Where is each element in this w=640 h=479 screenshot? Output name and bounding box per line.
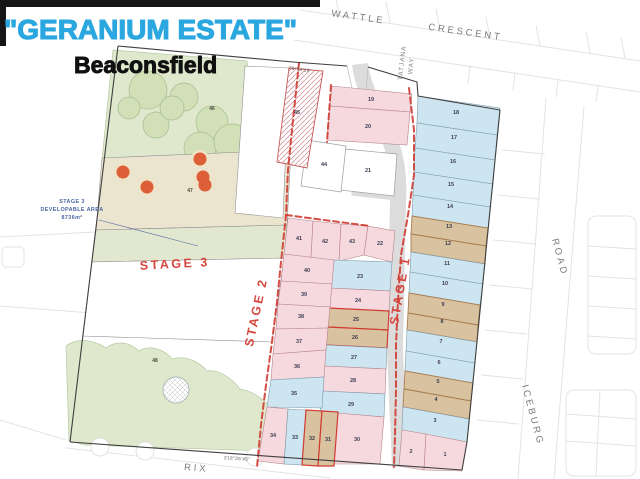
lot-6-label: 6 [437,360,440,366]
street-rix: RIX [184,462,209,475]
top-border-bar [0,0,320,7]
lot-5-label: 5 [436,379,439,385]
lot-12-label: 12 [445,241,451,247]
lot-26-label: 26 [352,335,358,341]
lot-25-label: 25 [353,317,359,323]
lot-9-label: 9 [441,302,444,308]
annotation-line2: DEVELOPABLE AREA [40,207,103,213]
lot-39-label: 39 [301,292,307,298]
lot-36-label: 36 [294,364,300,370]
lot-28-label: 28 [350,378,356,384]
annotation-line3: 8736m² [62,215,83,221]
lot-43-label: 43 [349,239,355,245]
lot-27-label: 27 [351,355,357,361]
lot-46-label: 46 [209,106,215,112]
lot-29-label: 29 [348,402,354,408]
lot-8-label: 8 [440,319,443,325]
lot-14-label: 14 [447,204,454,210]
lot-2-label: 2 [409,449,412,455]
lot-3-label: 3 [433,418,436,424]
lot-35-label: 35 [291,391,297,397]
suburb-title: Beaconsfield [74,52,217,78]
lot-24-label: 24 [355,298,362,304]
lot-40-label: 40 [304,268,310,274]
lot-10-label: 10 [442,281,448,287]
tree-dot [141,181,154,194]
retained-tree-circle-hatch [163,377,189,403]
lot-37-label: 37 [296,339,302,345]
lot-47-label: 47 [187,188,193,194]
lot-41-label: 41 [296,236,302,242]
lot-1-label: 1 [443,452,446,458]
lot-38-label: 38 [298,314,304,320]
annotation-line1: STAGE 3 [59,199,84,205]
tree-dot [117,166,130,179]
lot-20-label: 20 [365,124,371,130]
lot-16-label: 16 [450,159,456,165]
lot-33-label: 33 [292,435,298,441]
tree-dot [199,179,212,192]
lot-7-label: 7 [439,339,442,345]
lot-44-label: 44 [321,162,328,168]
lot-21-label: 21 [365,168,371,174]
lot-17-label: 17 [451,135,457,141]
lot-18-label: 18 [453,110,459,116]
scallop-2 [136,442,154,460]
lot-32-label: 32 [309,436,315,442]
estate-title: "GERANIUM ESTATE" [4,14,297,45]
lot-30-label: 30 [354,437,360,443]
lot-11-label: 11 [444,261,450,267]
lot-13-label: 13 [446,224,452,230]
lot-15-label: 15 [448,182,454,188]
lot-48-label: 48 [152,358,158,364]
lot-23-label: 23 [357,274,363,280]
lot-19-label: 19 [368,97,374,103]
lot-22-label: 22 [377,241,383,247]
lot-45-label: 45 [294,110,300,116]
tree-dot [194,153,207,166]
lot-42-label: 42 [322,239,328,245]
scallop-1 [91,438,109,456]
estate-plan-page: STAGE 3 DEVELOPABLE AREA 8736m² STAGE 3 … [0,0,640,479]
lot-34-label: 34 [270,433,277,439]
estate-plan-map: STAGE 3 DEVELOPABLE AREA 8736m² STAGE 3 … [0,0,640,479]
lot-31-label: 31 [325,437,331,443]
